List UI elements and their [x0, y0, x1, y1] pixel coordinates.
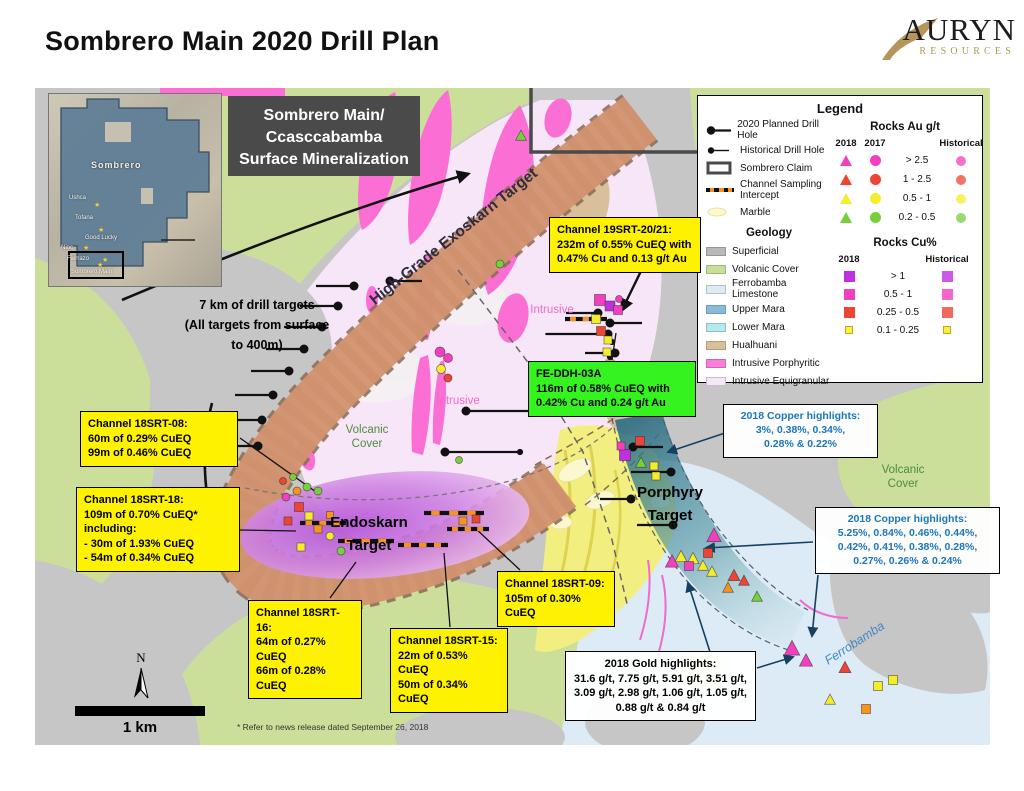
planned-drill-hole — [269, 391, 278, 400]
north-arrow-icon — [126, 666, 156, 702]
triangle-marker-icon — [840, 193, 852, 204]
channel-sampling-segment — [467, 511, 475, 515]
scale-label: 1 km — [75, 719, 205, 736]
inset-target-label: Nioc — [61, 245, 73, 251]
legend-label: Volcanic Cover — [732, 264, 799, 275]
geology-legend-row: Intrusive Porphyritic — [706, 354, 832, 372]
triangle-marker-icon — [840, 212, 852, 223]
legend-title: Legend — [706, 101, 974, 116]
geology-color-chip — [706, 323, 726, 332]
callout-line: 99m of 0.46% CuEQ — [88, 446, 230, 461]
callout-line: Channel 19SRT-20/21: — [557, 223, 693, 238]
square-marker-icon — [943, 326, 951, 334]
rock-sample-square — [595, 295, 606, 306]
intrusive-label: Intrusive — [516, 303, 588, 317]
range-label: 1 - 2.5 — [903, 174, 931, 185]
callout-line: Channel 18SRT-18: — [84, 493, 232, 508]
rock-sample-square — [472, 515, 480, 523]
planned-drill-hole — [350, 282, 359, 291]
map-title-box: Sombrero Main/ Ccasccabamba Surface Mine… — [228, 96, 420, 176]
triangle-marker-icon — [840, 174, 852, 185]
page-title: Sombrero Main 2020 Drill Plan — [45, 26, 439, 57]
north-label: N — [126, 650, 156, 666]
channel-sampling-segment — [570, 317, 576, 321]
map-title-line: Ccasccabamba — [228, 127, 420, 149]
legend-item-channel-sampling: Channel Sampling Intercept — [706, 177, 832, 203]
note-line: 7 km of drill targets — [148, 295, 366, 315]
rocks-au-row: 0.2 - 0.5 — [832, 208, 978, 227]
callout-line: - 54m of 0.34% CuEQ — [84, 551, 232, 566]
rock-sample-square — [889, 676, 898, 685]
circle-marker-icon — [870, 174, 881, 185]
rock-sample-circle — [496, 260, 504, 268]
rock-sample-square — [295, 503, 304, 512]
planned-drill-hole — [285, 367, 294, 376]
note-line: (All targets from surface — [148, 315, 366, 335]
scale-bar — [75, 706, 205, 716]
porphyry-target-label: Porphyry Target — [622, 482, 718, 527]
callout-line: Channel 18SRT-09: — [505, 577, 607, 592]
map-title-line: Sombrero Main/ — [228, 105, 420, 127]
legend-label: Upper Mara — [732, 304, 785, 315]
planned-drill-hole — [258, 416, 267, 425]
channel-sampling-icon — [706, 186, 734, 194]
callout-line: 3%, 0.38%, 0.34%, — [731, 424, 870, 438]
callout-line: FE-DDH-03A — [536, 367, 688, 382]
legend-label: Sombrero Claim — [740, 163, 812, 174]
rocks-au-title: Rocks Au g/t — [832, 121, 978, 133]
rock-sample-circle — [314, 487, 322, 495]
circle-marker-icon — [956, 175, 966, 185]
circle-marker-icon — [870, 212, 881, 223]
rock-sample-square — [636, 437, 645, 446]
inset-target-label: Ushca — [69, 195, 86, 201]
geology-legend-row: Ferrobamba Limestone — [706, 278, 832, 300]
rock-sample-circle — [282, 493, 290, 501]
geology-legend-row: Intrusive Equigranular — [706, 372, 832, 390]
square-marker-icon — [942, 289, 953, 300]
legend-label: Ferrobamba Limestone — [732, 278, 832, 300]
rock-sample-square — [603, 348, 611, 356]
note-line: to 400m) — [148, 335, 366, 355]
range-label: > 2.5 — [906, 155, 929, 166]
volcanic-cover-label: Volcanic Cover — [866, 463, 940, 492]
rocks-cu-row: > 1 — [832, 267, 978, 285]
rock-sample-square — [862, 705, 871, 714]
callout-line: 0.88 g/t & 0.84 g/t — [573, 701, 748, 716]
rock-sample-circle — [290, 474, 297, 481]
callout-line: 31.6 g/t, 7.75 g/t, 5.91 g/t, 3.51 g/t, — [573, 672, 748, 687]
rock-sample-circle — [435, 347, 445, 357]
callout-line: 60m of 0.29% CuEQ — [88, 432, 230, 447]
rocks-cu-title: Rocks Cu% — [832, 237, 978, 249]
col-2018: 2018 — [835, 138, 856, 149]
legend-label: 2020 Planned Drill Hole — [737, 119, 832, 141]
inset-target-star-icon: ★ — [97, 262, 103, 269]
callout-line: 2018 Copper highlights: — [731, 410, 870, 424]
geology-legend-row: Lower Mara — [706, 318, 832, 336]
geology-legend-row: Volcanic Cover — [706, 260, 832, 278]
rock-sample-circle — [437, 365, 446, 374]
rocks-au-row: 0.5 - 1 — [832, 189, 978, 208]
rock-sample-circle — [444, 354, 453, 363]
inset-target-labels: Sombrero★UshcaTofana★Good Lucky★Nioc★Fie… — [49, 94, 221, 286]
historical-drill-hole-icon — [706, 145, 734, 156]
callout-channel-18srt-09: Channel 18SRT-09: 105m of 0.30% CuEQ — [497, 571, 615, 627]
square-marker-icon — [942, 307, 953, 318]
legend-label: Superficial — [732, 246, 779, 257]
square-marker-icon — [845, 326, 853, 334]
rock-sample-circle — [293, 487, 301, 495]
geology-color-chip — [706, 285, 726, 294]
square-marker-icon — [844, 307, 855, 318]
geology-color-chip — [706, 359, 726, 368]
geology-color-chip — [706, 247, 726, 256]
inset-target-star-icon: ★ — [83, 245, 89, 252]
callout-line: - 30m of 1.93% CuEQ — [84, 537, 232, 552]
rocks-cu-row: 0.25 - 0.5 — [832, 303, 978, 321]
col-historical: Historical — [939, 138, 982, 149]
rock-sample-square — [297, 543, 305, 551]
geology-color-chip — [706, 341, 726, 350]
rock-sample-circle — [616, 296, 623, 303]
callout-line: 105m of 0.30% CuEQ — [505, 592, 607, 621]
geology-section-title: Geology — [706, 227, 832, 239]
planned-drill-hole — [254, 442, 263, 451]
legend-label: Historical Drill Hole — [740, 145, 824, 156]
footnote: * Refer to news release dated September … — [237, 722, 428, 732]
square-marker-icon — [844, 271, 855, 282]
callout-line: 2018 Gold highlights: — [573, 657, 748, 672]
callout-line: 3.09 g/t, 2.98 g/t, 1.06 g/t, 1.05 g/t, — [573, 686, 748, 701]
geology-legend-row: Upper Mara — [706, 300, 832, 318]
inset-region-label: Sombrero — [91, 160, 142, 170]
legend-label: Channel Sampling Intercept — [740, 179, 832, 201]
callout-line: 232m of 0.55% CuEQ with — [557, 238, 693, 253]
legend-item-planned-drill: 2020 Planned Drill Hole — [706, 119, 832, 141]
legend-label: Marble — [740, 207, 771, 218]
rock-sample-square — [284, 517, 292, 525]
geology-legend-row: Hualhuani — [706, 336, 832, 354]
callout-line: 64m of 0.27% CuEQ — [256, 635, 354, 664]
inset-target-star-icon: ★ — [94, 202, 100, 209]
channel-sampling-segment — [583, 317, 589, 321]
callout-line: 0.27%, 0.26% & 0.24% — [823, 555, 992, 569]
callout-line: Channel 18SRT-16: — [256, 606, 354, 635]
range-label: 0.1 - 0.25 — [877, 325, 919, 336]
inset-target-star-icon: ★ — [98, 227, 104, 234]
callout-line: 5.25%, 0.84%, 0.46%, 0.44%, — [823, 527, 992, 541]
col-historical: Historical — [925, 254, 968, 265]
circle-marker-icon — [956, 213, 966, 223]
channel-sampling-segment — [452, 527, 458, 531]
circle-marker-icon — [956, 194, 966, 204]
circle-marker-icon — [870, 155, 881, 166]
sombrero-claim-icon — [706, 161, 734, 175]
inset-target-label: Good Lucky — [85, 235, 117, 241]
rock-sample-square — [650, 462, 658, 470]
legend-item-historical-drill: Historical Drill Hole — [706, 141, 832, 159]
circle-marker-icon — [870, 193, 881, 204]
callout-channel-18srt-15: Channel 18SRT-15: 22m of 0.53% CuEQ 50m … — [390, 628, 508, 713]
callout-line: 109m of 0.70% CuEQ* — [84, 508, 232, 523]
rock-sample-circle — [280, 478, 287, 485]
callout-line: 0.42%, 0.41%, 0.38%, 0.28%, — [823, 541, 992, 555]
rocks-cu-row: 0.1 - 0.25 — [832, 321, 978, 339]
callout-line: 0.42% Cu and 0.24 g/t Au — [536, 396, 688, 411]
callout-2018-gold-highlights: 2018 Gold highlights: 31.6 g/t, 7.75 g/t… — [565, 651, 756, 721]
rock-sample-square — [592, 315, 601, 324]
legend-label: Intrusive Equigranular — [732, 376, 829, 387]
callout-line: 0.28% & 0.22% — [731, 438, 870, 452]
rocks-cu-row: 0.5 - 1 — [832, 285, 978, 303]
channel-sampling-segment — [449, 511, 458, 515]
legend-label: Lower Mara — [732, 322, 785, 333]
callout-line: 116m of 0.58% CuEQ with — [536, 382, 688, 397]
marble-icon — [706, 207, 734, 217]
map-title-line: Surface Mineralization — [228, 149, 420, 171]
circle-marker-icon — [956, 156, 966, 166]
planned-drill-hole-icon — [706, 125, 731, 136]
north-arrow: N — [126, 650, 156, 707]
rock-sample-circle — [456, 457, 463, 464]
callout-line: Channel 18SRT-15: — [398, 634, 500, 649]
rock-sample-square — [614, 306, 623, 315]
channel-sampling-segment — [434, 543, 441, 547]
inset-target-label: Sombrero Main — [71, 269, 112, 275]
channel-sampling-segment — [465, 527, 471, 531]
rock-sample-square — [597, 327, 606, 336]
volcanic-cover-label: Volcanic Cover — [330, 423, 404, 452]
col-2018: 2018 — [838, 254, 859, 265]
triangle-marker-icon — [840, 155, 852, 166]
callout-line: 66m of 0.28% CuEQ — [256, 664, 354, 693]
rock-sample-square — [620, 450, 631, 461]
callout-fe-ddh-03a: FE-DDH-03A 116m of 0.58% CuEQ with 0.42%… — [528, 361, 696, 417]
rocks-au-row: > 2.5 — [832, 151, 978, 170]
callout-channel-18srt-16: Channel 18SRT-16: 64m of 0.27% CuEQ 66m … — [248, 600, 362, 699]
square-marker-icon — [844, 289, 855, 300]
rocks-au-header: 2018 2017 Historical — [832, 136, 978, 151]
legend-item-marble: Marble — [706, 203, 832, 221]
rocks-cu-header: 2018 Historical — [832, 252, 978, 267]
intrusive-label: Intrusive — [422, 394, 494, 408]
callout-channel-19srt-20-21: Channel 19SRT-20/21: 232m of 0.55% CuEQ … — [549, 217, 701, 273]
planned-drill-hole — [606, 319, 615, 328]
historical-drill-hole — [517, 449, 523, 455]
geology-color-chip — [706, 305, 726, 314]
callout-line: 2018 Copper highlights: — [823, 513, 992, 527]
range-label: 0.5 - 1 — [884, 289, 912, 300]
channel-sampling-segment — [431, 511, 439, 515]
rock-sample-square — [874, 682, 883, 691]
rock-sample-circle — [444, 374, 452, 382]
inset-locator-map: Sombrero★UshcaTofana★Good Lucky★Nioc★Fie… — [48, 93, 222, 287]
callout-line: 22m of 0.53% CuEQ — [398, 649, 500, 678]
range-label: 0.5 - 1 — [903, 193, 931, 204]
rocks-au-row: 1 - 2.5 — [832, 170, 978, 189]
planned-drill-hole — [441, 448, 450, 457]
rock-sample-square — [704, 549, 713, 558]
legend-label: Hualhuani — [732, 340, 777, 351]
rock-sample-square — [652, 472, 660, 480]
legend-panel: Legend 2020 Planned Drill Hole Historica… — [697, 95, 983, 383]
range-label: 0.2 - 0.5 — [899, 212, 936, 223]
drill-plan-page: { "page": {"title": "Sombrero Main 2020 … — [0, 0, 1024, 791]
rock-sample-square — [617, 442, 625, 450]
rock-sample-square — [459, 517, 467, 525]
legend-label: Intrusive Porphyritic — [732, 358, 820, 369]
callout-2018-copper-highlights-2: 2018 Copper highlights: 5.25%, 0.84%, 0.… — [815, 507, 1000, 574]
range-label: > 1 — [891, 271, 905, 282]
drill-targets-note: 7 km of drill targets (All targets from … — [148, 295, 366, 355]
logo-brand-text: AURYN — [838, 14, 1016, 47]
legend-item-claim: Sombrero Claim — [706, 159, 832, 177]
channel-sampling-segment — [477, 527, 483, 531]
callout-line: including: — [84, 522, 232, 537]
geology-color-chip — [706, 377, 726, 386]
square-marker-icon — [942, 271, 953, 282]
rock-sample-square — [685, 562, 694, 571]
callout-2018-copper-highlights-1: 2018 Copper highlights: 3%, 0.38%, 0.34%… — [723, 404, 878, 458]
range-label: 0.25 - 0.5 — [877, 307, 919, 318]
geology-legend-row: Superficial — [706, 242, 832, 260]
callout-line: 0.47% Cu and 0.13 g/t Au — [557, 252, 693, 267]
callout-channel-18srt-18: Channel 18SRT-18: 109m of 0.70% CuEQ* in… — [76, 487, 240, 572]
geology-color-chip — [706, 265, 726, 274]
auryn-logo: AURYN RESOURCES — [838, 14, 1016, 80]
rock-sample-circle — [303, 483, 311, 491]
callout-line: Channel 18SRT-08: — [88, 417, 230, 432]
planned-drill-hole — [667, 468, 676, 477]
endoskarn-target-label: Endoskarn Target — [310, 512, 428, 557]
callout-line: 50m of 0.34% CuEQ — [398, 678, 500, 707]
rock-sample-square — [604, 336, 612, 344]
inset-target-label: Tofana — [75, 215, 93, 221]
callout-channel-18srt-08: Channel 18SRT-08: 60m of 0.29% CuEQ 99m … — [80, 411, 238, 467]
col-2017: 2017 — [864, 138, 885, 149]
inset-target-label: Fierrazo — [67, 256, 89, 262]
